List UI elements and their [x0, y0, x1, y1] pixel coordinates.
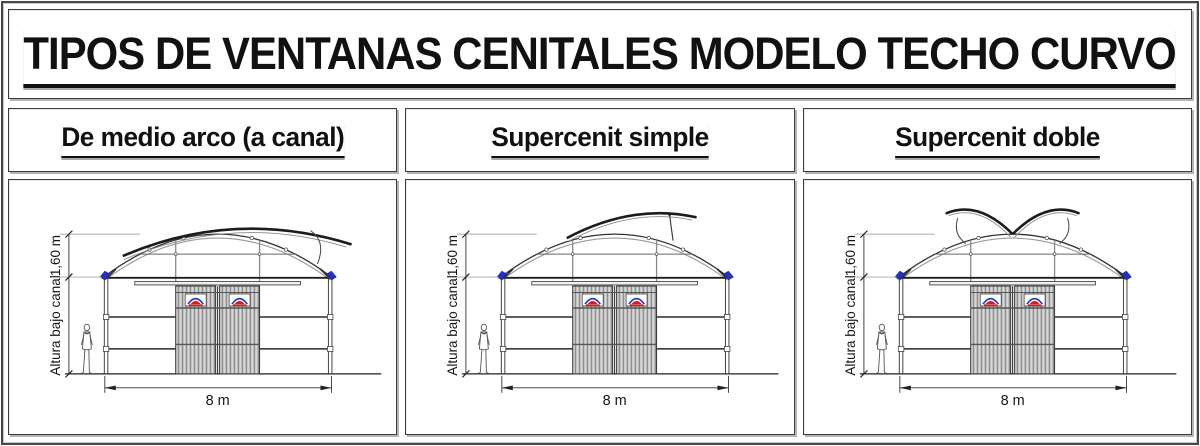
header-supercenit-simple: Supercenit simple — [405, 108, 794, 172]
greenhouse-diagram-supercenit-doble: 1,60 m Altura bajo canal 8 m — [805, 181, 1190, 433]
diagram-row: 1,60 m Altura bajo canal 8 m 1,6 — [8, 179, 1192, 435]
label-roof-rise: 1,60 m — [445, 235, 460, 276]
page-title: TIPOS DE VENTANAS CENITALES MODELO TECHO… — [24, 28, 1176, 80]
label-span-width: 8 m — [206, 393, 230, 409]
panel-supercenit-simple: 1,60 m Altura bajo canal 8 m — [405, 179, 794, 435]
column-header-row: De medio arco (a canal) Supercenit simpl… — [8, 108, 1192, 172]
label-roof-rise: 1,60 m — [843, 235, 858, 276]
greenhouse-diagram-supercenit-simple: 1,60 m Altura bajo canal 8 m — [407, 181, 792, 433]
label-altura-bajo-canal: Altura bajo canal — [48, 275, 63, 375]
label-altura-bajo-canal: Altura bajo canal — [445, 275, 460, 375]
label-span-width: 8 m — [603, 393, 627, 409]
header-medio-arco: De medio arco (a canal) — [8, 108, 397, 172]
panel-title: Supercenit doble — [895, 122, 1100, 158]
panel-title: De medio arco (a canal) — [61, 122, 344, 158]
sheet-frame: TIPOS DE VENTANAS CENITALES MODELO TECHO… — [1, 1, 1199, 445]
greenhouse-diagram-medio-arco: 1,60 m Altura bajo canal 8 m — [10, 181, 395, 433]
title-banner: TIPOS DE VENTANAS CENITALES MODELO TECHO… — [8, 9, 1192, 99]
drawing-sheet: TIPOS DE VENTANAS CENITALES MODELO TECHO… — [0, 0, 1200, 446]
label-altura-bajo-canal: Altura bajo canal — [843, 275, 858, 375]
header-supercenit-doble: Supercenit doble — [803, 108, 1192, 172]
label-roof-rise: 1,60 m — [48, 235, 63, 276]
label-span-width: 8 m — [1000, 393, 1024, 409]
panel-supercenit-doble: 1,60 m Altura bajo canal 8 m — [803, 179, 1192, 435]
panel-medio-arco: 1,60 m Altura bajo canal 8 m — [8, 179, 397, 435]
panel-title: Supercenit simple — [491, 122, 708, 158]
